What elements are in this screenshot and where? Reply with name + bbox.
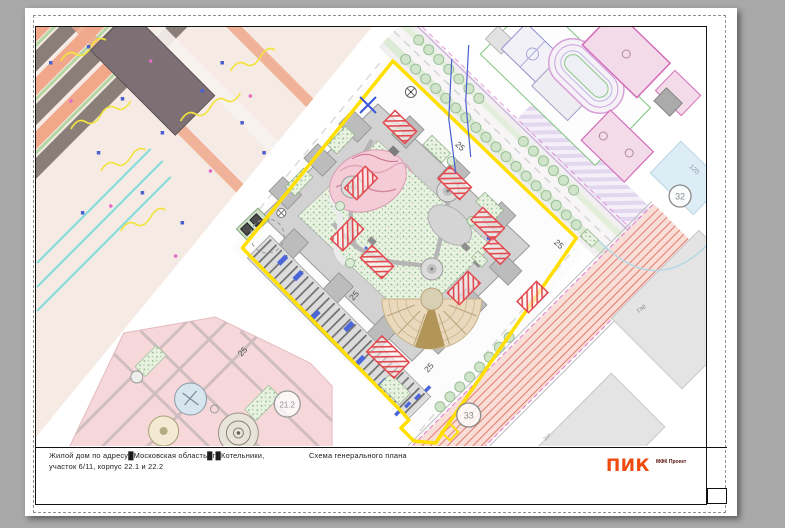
playground-circle: [131, 371, 143, 383]
survey-benchmark-icon: [405, 87, 416, 98]
title-block-extension-line: [707, 447, 727, 448]
svg-text:21.2: 21.2: [280, 400, 296, 409]
playground-large-circle: [149, 416, 179, 446]
parcel-number-32: 32: [669, 185, 691, 207]
svg-text:32: 32: [675, 191, 685, 201]
project-address-line2: участок 6/11, корпус 22.1 и 22.2: [49, 461, 305, 472]
stamp-box: [707, 488, 727, 504]
project-address: Жилой дом по адресу█Московская область█г…: [49, 450, 305, 472]
svg-text:33: 33: [464, 410, 474, 420]
company-logo: ПИК МФК Проект: [606, 456, 736, 486]
survey-benchmark-icon: [277, 209, 286, 218]
drawing-sheet-page: 120 Гар 2эт: [25, 8, 737, 516]
sheet-title: Схема генерального плана: [309, 451, 407, 460]
site-plan-map: 120 Гар 2эт: [36, 27, 706, 446]
drawing-frame: 120 Гар 2эт: [35, 26, 707, 505]
parcel-number-21-2: 21.2: [274, 391, 300, 417]
project-address-line1: Жилой дом по адресу█Московская область█г…: [49, 450, 305, 461]
parcel-number-33: 33: [457, 403, 481, 427]
pik-logo: ПИК: [606, 456, 650, 476]
pik-logo-subtitle: МФК Проект: [656, 459, 686, 465]
title-block: Жилой дом по адресу█Московская область█г…: [36, 447, 706, 504]
pool-circle: [175, 383, 207, 415]
